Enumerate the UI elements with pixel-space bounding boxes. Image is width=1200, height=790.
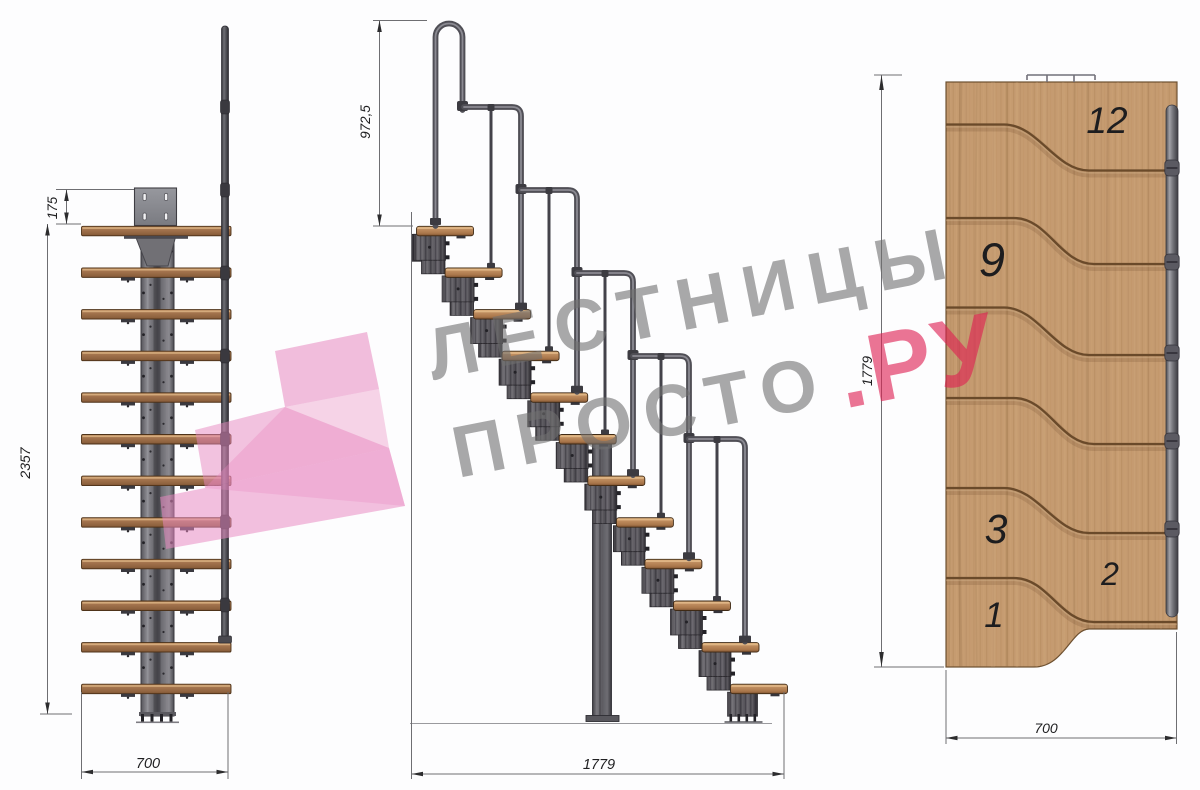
svg-text:2357: 2357 (17, 446, 33, 479)
svg-text:972,5: 972,5 (358, 105, 373, 139)
svg-text:700: 700 (1034, 720, 1058, 736)
svg-text:175: 175 (45, 196, 60, 219)
svg-text:12: 12 (1086, 100, 1128, 141)
svg-text:700: 700 (136, 756, 160, 772)
svg-text:9: 9 (979, 233, 1005, 286)
svg-text:1: 1 (984, 596, 1003, 635)
svg-text:2: 2 (1100, 556, 1119, 592)
svg-text:3: 3 (985, 506, 1008, 552)
svg-text:1779: 1779 (583, 757, 615, 773)
